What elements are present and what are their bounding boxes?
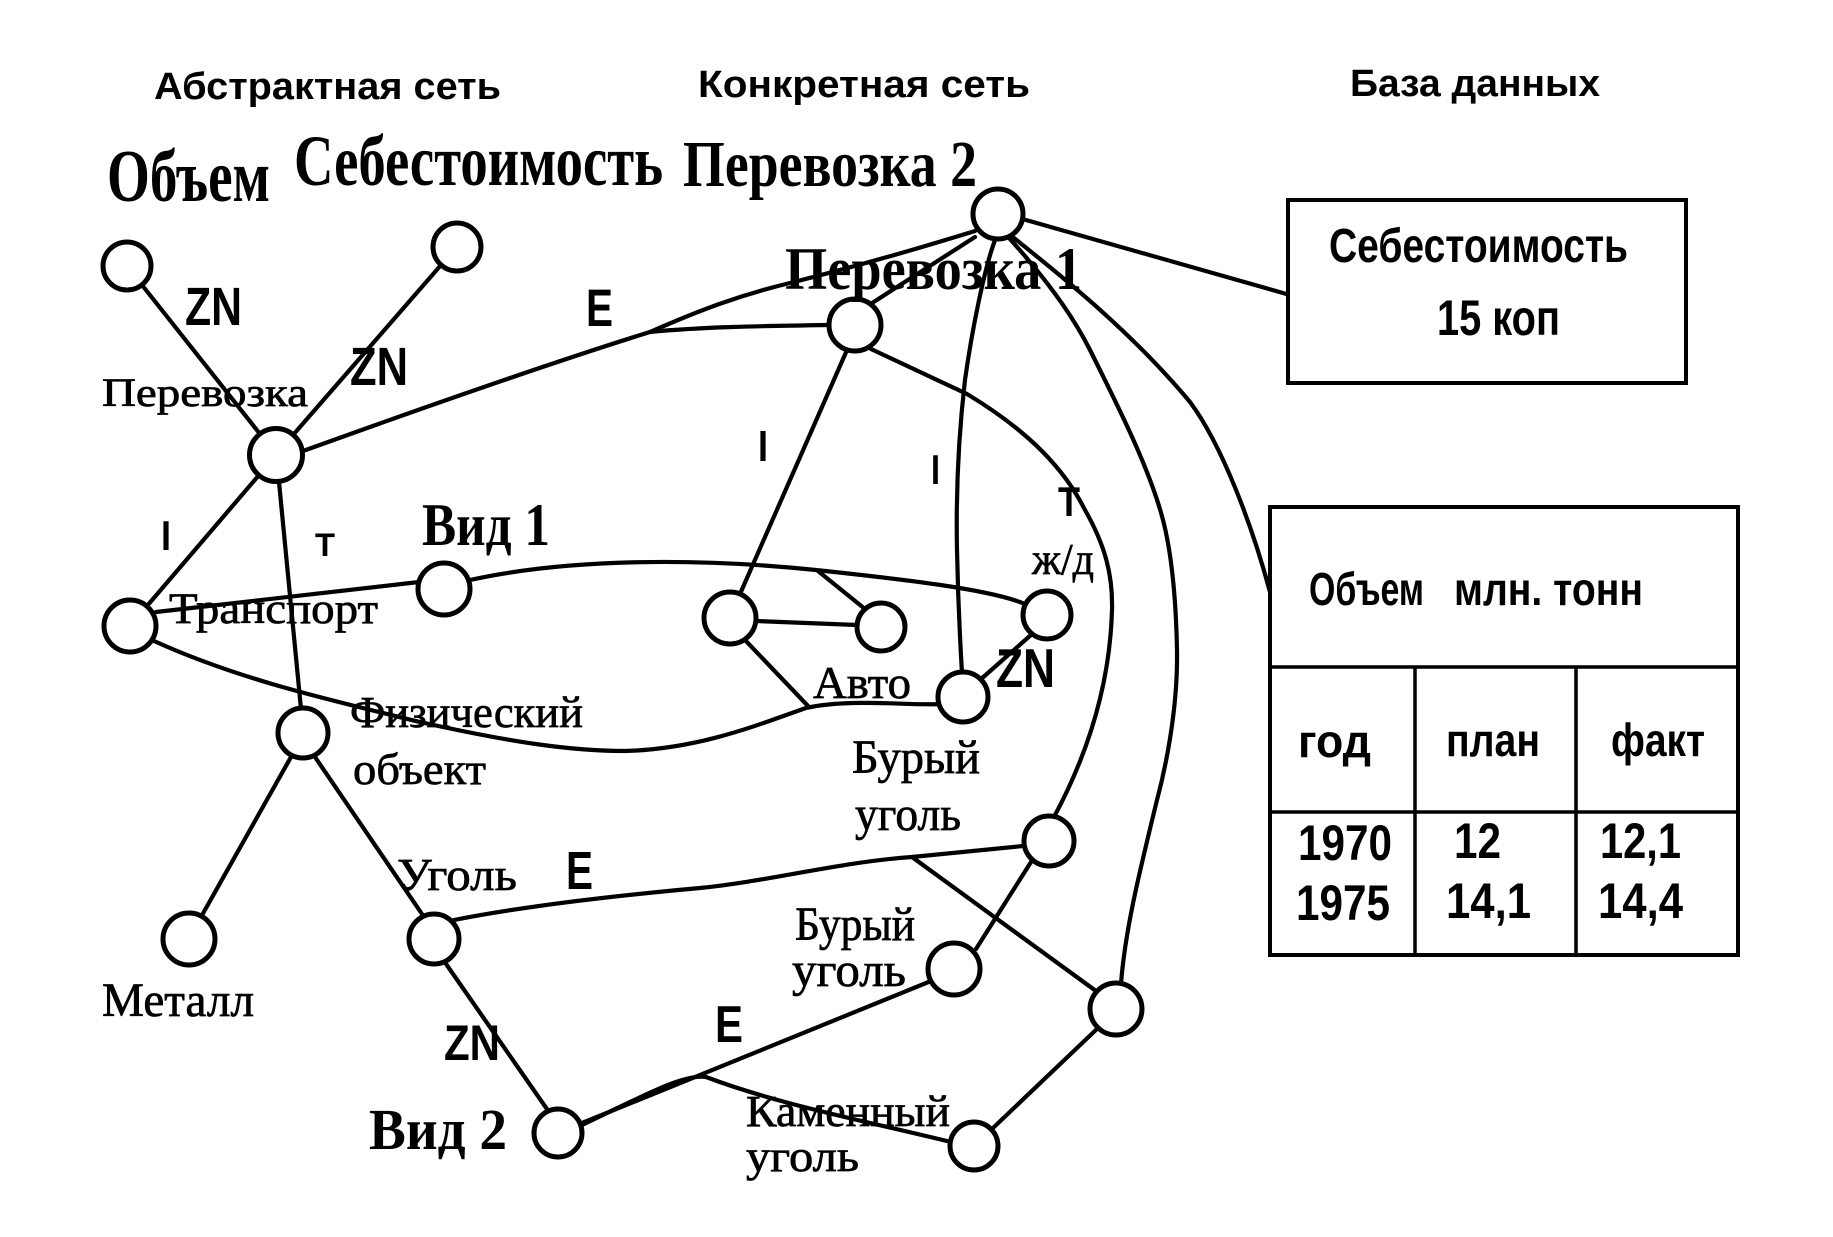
svg-text:Авто: Авто: [813, 657, 911, 708]
svg-text:уголь: уголь: [855, 788, 961, 841]
svg-text:ж/д: ж/д: [1031, 535, 1094, 584]
svg-text:факт: факт: [1611, 714, 1705, 766]
svg-text:1970: 1970: [1298, 815, 1392, 871]
svg-text:T: T: [315, 527, 335, 563]
svg-text:уголь: уголь: [792, 944, 906, 997]
svg-text:1975: 1975: [1296, 875, 1390, 931]
svg-text:E: E: [586, 279, 613, 338]
svg-text:E: E: [566, 841, 593, 901]
svg-text:Конкретная сеть: Конкретная сеть: [698, 64, 1030, 106]
svg-text:млн. тонн: млн. тонн: [1454, 563, 1643, 615]
svg-text:E: E: [715, 996, 743, 1054]
svg-text:T: T: [1058, 478, 1080, 525]
svg-text:ZN: ZN: [444, 1015, 500, 1071]
svg-text:Себестоимость: Себестоимость: [1329, 220, 1628, 273]
svg-text:I: I: [161, 512, 171, 559]
svg-text:ZN: ZN: [350, 337, 408, 397]
svg-text:Перевозка 1: Перевозка 1: [785, 236, 1082, 302]
svg-text:Каменный: Каменный: [746, 1087, 950, 1136]
svg-text:14,1: 14,1: [1446, 873, 1531, 929]
svg-text:объект: объект: [353, 745, 486, 794]
svg-text:Перевозка: Перевозка: [102, 370, 308, 415]
svg-text:База данных: База данных: [1350, 63, 1600, 105]
svg-text:I: I: [931, 446, 940, 493]
svg-text:ZN: ZN: [996, 637, 1055, 699]
svg-text:15 коп: 15 коп: [1437, 290, 1560, 346]
svg-text:Объем: Объем: [1309, 563, 1424, 615]
svg-text:I: I: [758, 422, 768, 471]
svg-text:Уголь: Уголь: [397, 849, 517, 900]
svg-text:12: 12: [1454, 813, 1501, 869]
svg-text:Вид 1: Вид 1: [422, 492, 550, 558]
svg-text:Абстрактная сеть: Абстрактная сеть: [154, 66, 501, 108]
svg-text:Бурый: Бурый: [852, 731, 980, 784]
svg-text:ZN: ZN: [185, 277, 242, 337]
svg-text:12,1: 12,1: [1600, 813, 1681, 869]
svg-text:Себестоимость: Себестоимость: [294, 121, 663, 201]
svg-text:уголь: уголь: [746, 1132, 859, 1181]
svg-text:Объем: Объем: [107, 136, 270, 218]
svg-text:план: план: [1446, 714, 1540, 766]
svg-text:год: год: [1298, 715, 1371, 767]
svg-text:Физический: Физический: [350, 688, 583, 737]
svg-text:Металл: Металл: [102, 974, 254, 1027]
svg-text:Вид 2: Вид 2: [369, 1097, 507, 1162]
svg-text:14,4: 14,4: [1598, 873, 1683, 929]
svg-text:Транспорт: Транспорт: [169, 586, 378, 633]
svg-text:Перевозка 2: Перевозка 2: [683, 128, 977, 201]
